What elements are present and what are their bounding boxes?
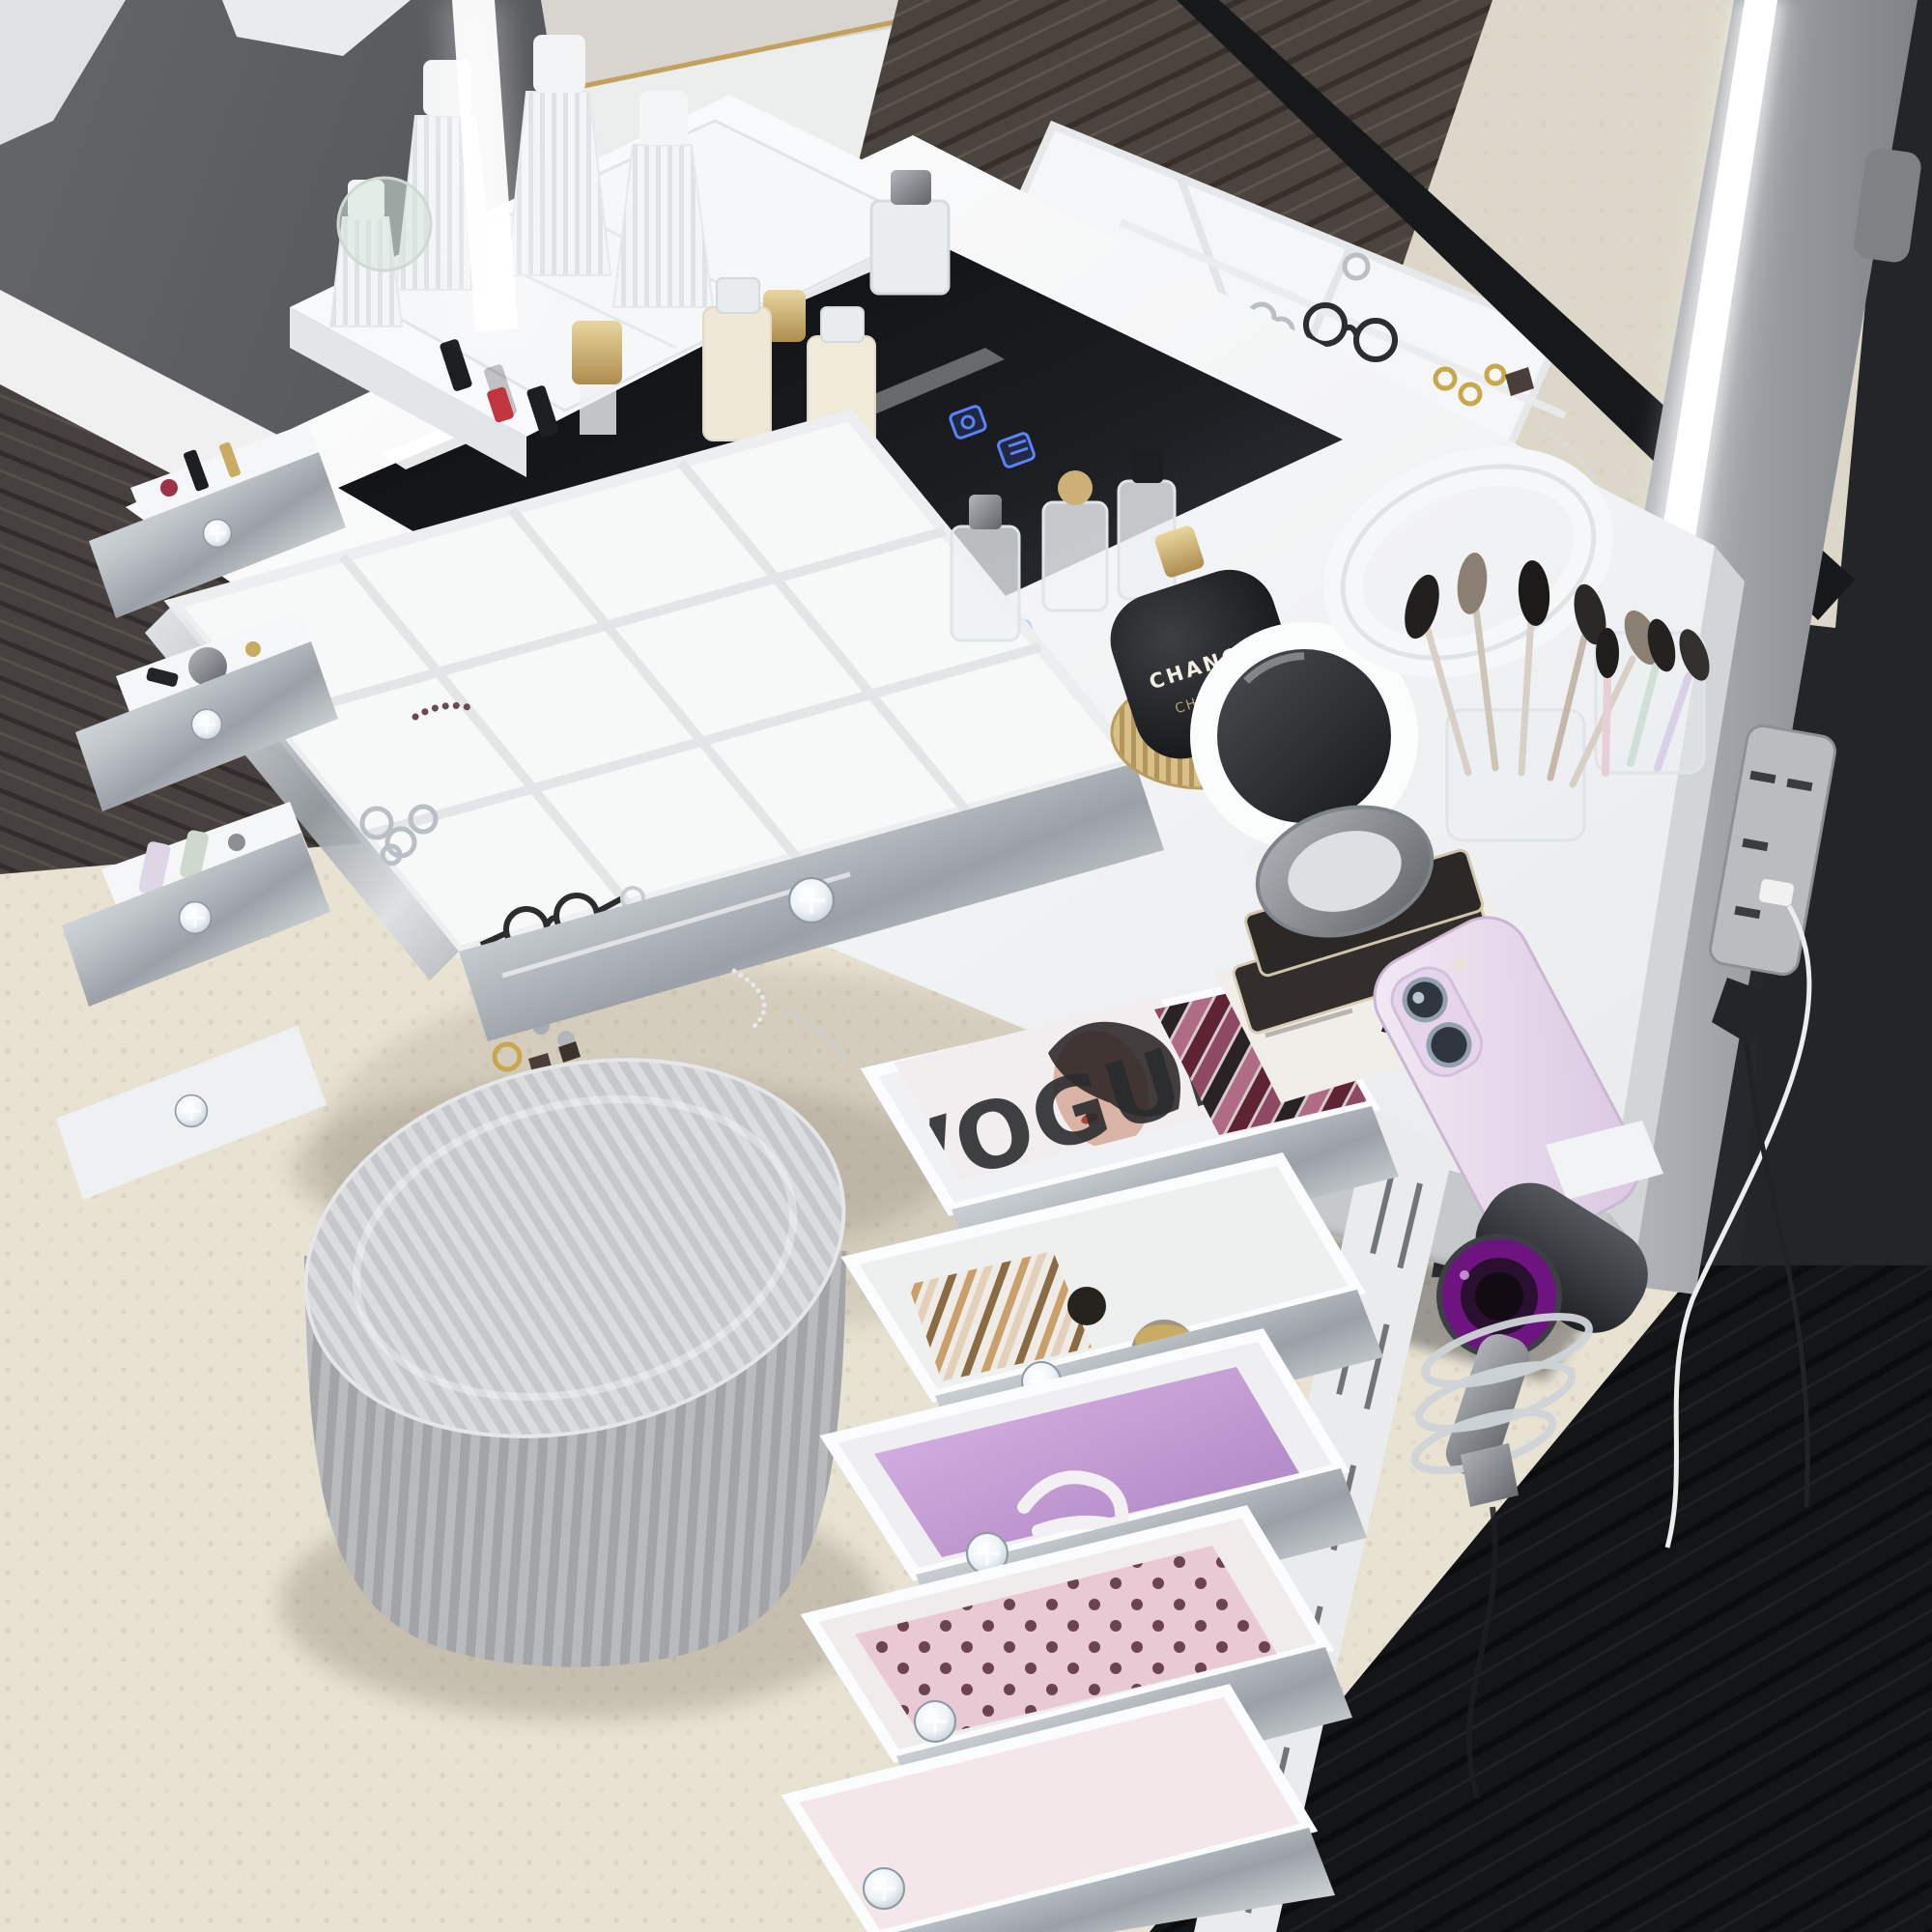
crystal-knob-r5 bbox=[864, 1868, 904, 1909]
serum-bottle-1 bbox=[703, 307, 771, 440]
dryer-nozzle-tip bbox=[1461, 1443, 1519, 1507]
black-jar bbox=[1067, 1287, 1106, 1325]
square-perfume-cap bbox=[891, 170, 931, 205]
black-perfume-cap bbox=[1132, 450, 1163, 483]
square-perfume bbox=[871, 201, 949, 294]
gold-cap-small bbox=[245, 641, 261, 657]
mirror-dark-glass bbox=[1217, 649, 1391, 823]
green-glass-disc bbox=[338, 178, 431, 270]
scene-render: UE bbox=[0, 0, 1932, 1932]
crystal-knob-r4 bbox=[915, 1701, 955, 1742]
spray-nozzle bbox=[228, 834, 245, 851]
serum-cap-2 bbox=[821, 307, 864, 342]
gold-sprayer-1-body bbox=[580, 384, 616, 435]
dryer-indicator-dot bbox=[1460, 1270, 1469, 1280]
crystal-knob-left-1 bbox=[204, 520, 232, 548]
bottle-cap-2 bbox=[533, 35, 585, 93]
clear-perfume-bottle bbox=[952, 526, 1019, 640]
blush-pot bbox=[160, 479, 178, 497]
gold-sphere-cap bbox=[1058, 470, 1093, 505]
serum-cap-1 bbox=[717, 278, 759, 313]
dryer-face-hole bbox=[1475, 1272, 1523, 1321]
crystal-knob-left-4 bbox=[176, 1095, 208, 1127]
vanity-room-render: UE bbox=[0, 0, 1932, 1932]
perfume-bottle-2 bbox=[1043, 502, 1107, 611]
bottle-cap-3 bbox=[639, 91, 688, 145]
gold-sprayer-1 bbox=[572, 321, 622, 384]
clear-perfume-cap bbox=[969, 495, 1002, 529]
crystal-knob-left-2 bbox=[191, 709, 221, 739]
crystal-knob-main-drawer bbox=[789, 878, 834, 923]
crystal-knob-left-3 bbox=[180, 902, 212, 934]
